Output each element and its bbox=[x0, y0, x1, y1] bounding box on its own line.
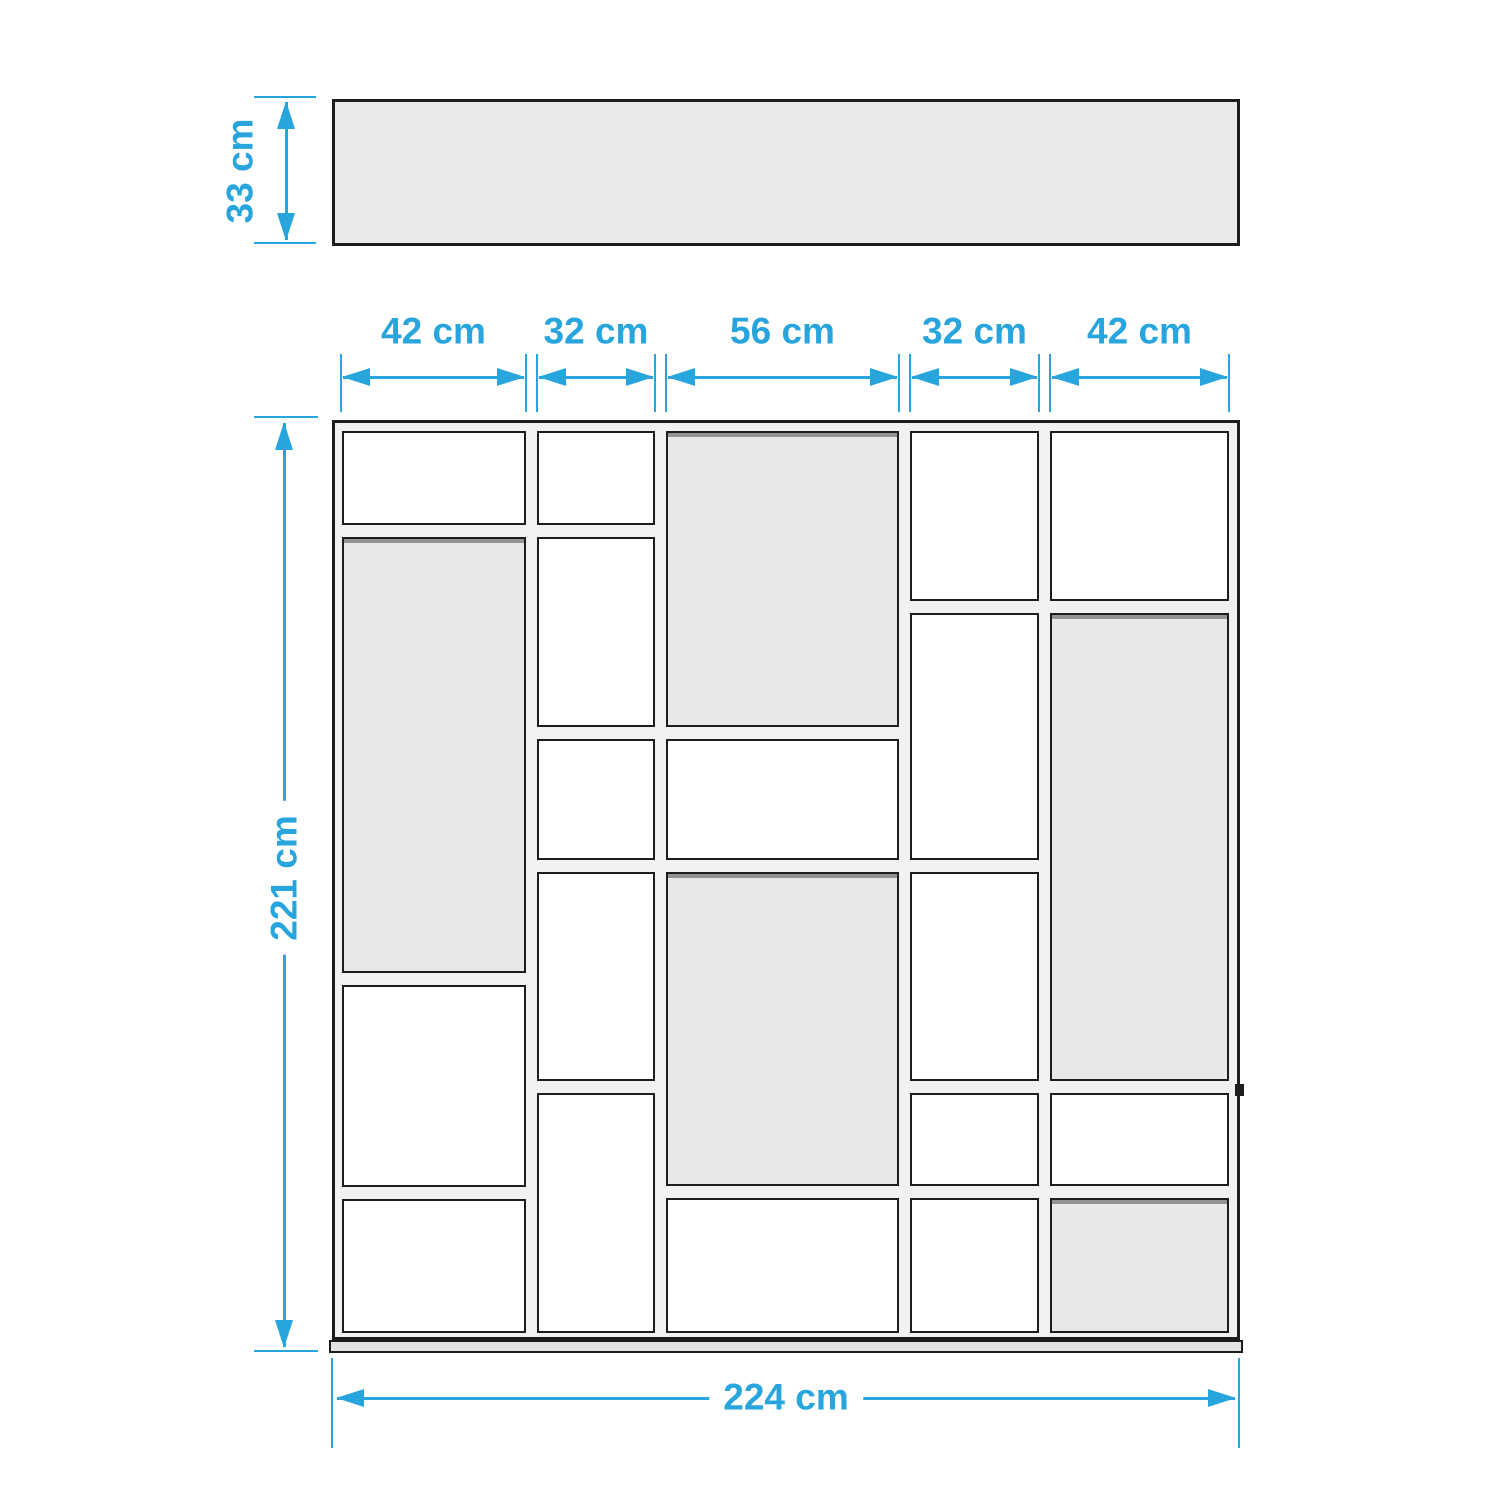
shelf-column-2-cell-5 bbox=[537, 1093, 655, 1333]
column-width-arrow-left-4 bbox=[911, 368, 939, 386]
height-extension-line-2 bbox=[254, 1350, 318, 1353]
height-arrow-up bbox=[275, 422, 293, 450]
column-width-arrow-right-1 bbox=[497, 368, 525, 386]
depth-extension-line-2 bbox=[254, 242, 316, 245]
shelf-column-4-cell-5 bbox=[910, 1198, 1039, 1333]
shelf-column-3-cell-2 bbox=[666, 739, 899, 860]
column-width-arrow-left-3 bbox=[667, 368, 695, 386]
depth-arrow-down bbox=[277, 213, 295, 241]
dimension-label-total-width: 224 cm bbox=[709, 1377, 863, 1418]
dimension-label-depth: 33 cm bbox=[222, 119, 259, 224]
shelf-column-4-cell-1 bbox=[910, 431, 1039, 601]
shelf-column-2-cell-3 bbox=[537, 739, 655, 860]
column-width-arrow-left-2 bbox=[538, 368, 566, 386]
column-width-arrow-left-1 bbox=[342, 368, 370, 386]
depth-extension-line-1 bbox=[254, 96, 316, 99]
shelf-column-2-cell-4 bbox=[537, 872, 655, 1081]
total-width-extension-line-2 bbox=[1238, 1358, 1241, 1448]
shelf-column-4-cell-2 bbox=[910, 613, 1039, 860]
base-plinth bbox=[329, 1340, 1243, 1353]
column-width-dimension-line-3 bbox=[668, 376, 897, 379]
dimension-label-column-1-width: 42 cm bbox=[381, 313, 486, 350]
shelf-column-1-cell-4 bbox=[342, 1199, 526, 1333]
dimension-label-column-4-width: 32 cm bbox=[922, 313, 1027, 350]
column-width-arrow-right-5 bbox=[1200, 368, 1228, 386]
dimension-label-height: 221 cm bbox=[264, 801, 305, 955]
height-extension-line-1 bbox=[254, 416, 318, 419]
height-arrow-down bbox=[275, 1320, 293, 1348]
shelf-column-5-cell-2 bbox=[1050, 613, 1229, 1081]
shelf-column-5-cell-4 bbox=[1050, 1198, 1229, 1333]
shelf-column-3-cell-4 bbox=[666, 1198, 899, 1333]
dimension-label-column-3-width: 56 cm bbox=[730, 313, 835, 350]
dimension-label-column-2-width: 32 cm bbox=[544, 313, 649, 350]
total-width-arrow-left bbox=[336, 1389, 364, 1407]
shelf-column-5-cell-3 bbox=[1050, 1093, 1229, 1186]
shelf-column-1-cell-2 bbox=[342, 537, 526, 973]
column-width-arrow-right-3 bbox=[870, 368, 898, 386]
column-width-arrow-left-5 bbox=[1051, 368, 1079, 386]
shelf-column-4-cell-4 bbox=[910, 1093, 1039, 1186]
total-width-arrow-right bbox=[1208, 1389, 1236, 1407]
column-width-arrow-right-4 bbox=[1010, 368, 1038, 386]
column-width-arrow-right-2 bbox=[626, 368, 654, 386]
shelf-column-2-cell-2 bbox=[537, 537, 655, 727]
shelf-column-5-cell-1 bbox=[1050, 431, 1229, 601]
shelf-column-1-cell-1 bbox=[342, 431, 526, 525]
total-width-extension-line-1 bbox=[331, 1358, 334, 1448]
width-extension-line-2 bbox=[525, 354, 528, 412]
shelf-column-3-cell-3 bbox=[666, 872, 899, 1186]
shelf-column-3-cell-1 bbox=[666, 431, 899, 727]
shelf-column-4-cell-3 bbox=[910, 872, 1039, 1081]
shelf-column-1-cell-3 bbox=[342, 985, 526, 1187]
shelf-column-2-cell-1 bbox=[537, 431, 655, 525]
dimension-diagram: 42 cm 32 cm 56 cm 32 cm 42 cm 33 cm 221 … bbox=[0, 0, 1500, 1500]
width-extension-line-4 bbox=[654, 354, 657, 412]
width-extension-line-10 bbox=[1228, 354, 1231, 412]
wall-bracket bbox=[1235, 1084, 1244, 1096]
dimension-label-column-5-width: 42 cm bbox=[1087, 313, 1192, 350]
top-view-panel bbox=[332, 99, 1240, 246]
width-extension-line-8 bbox=[1038, 354, 1041, 412]
depth-arrow-up bbox=[277, 101, 295, 129]
width-extension-line-6 bbox=[898, 354, 901, 412]
